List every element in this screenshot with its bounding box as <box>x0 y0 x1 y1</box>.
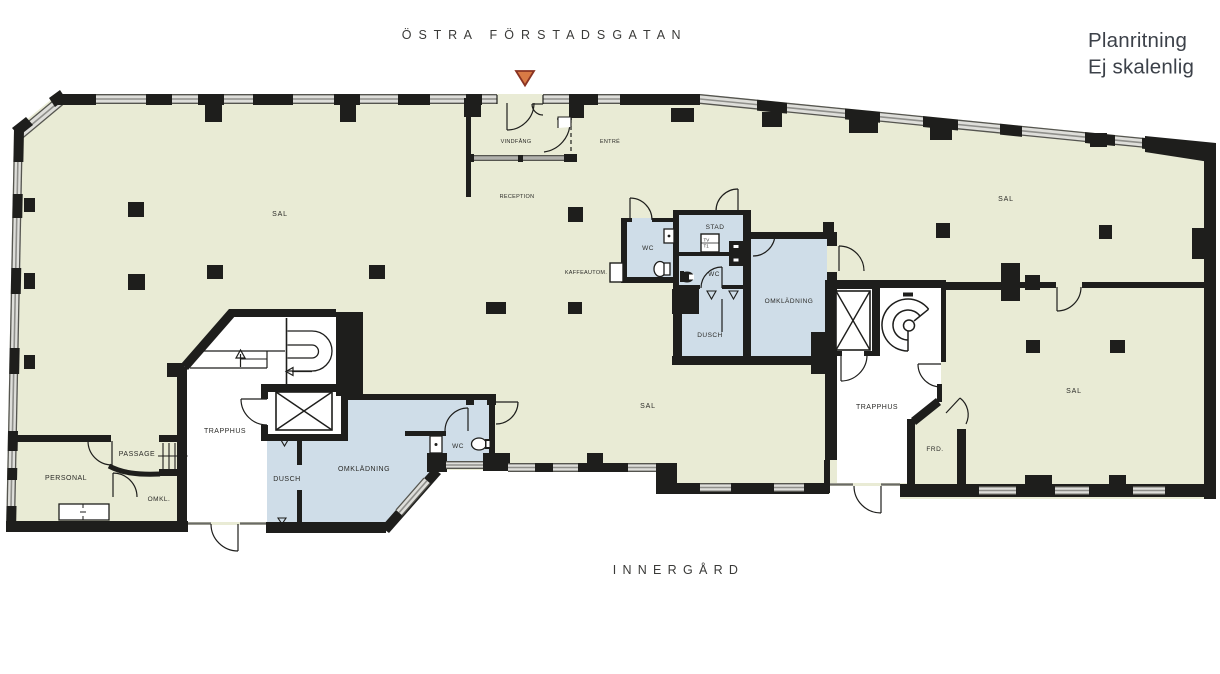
svg-text:SAL: SAL <box>1066 388 1082 395</box>
svg-text:OMKLÄDNING: OMKLÄDNING <box>338 465 390 473</box>
svg-text:RECEPTION: RECEPTION <box>500 194 535 200</box>
svg-text:SAL: SAL <box>998 196 1014 203</box>
svg-text:FRD.: FRD. <box>926 446 943 453</box>
svg-text:SAL: SAL <box>272 211 288 218</box>
svg-text:ENTRÉ: ENTRÉ <box>600 138 620 145</box>
svg-text:T1: T1 <box>704 244 710 249</box>
svg-text:VINDFÅNG: VINDFÅNG <box>501 138 532 145</box>
svg-text:PERSONAL: PERSONAL <box>45 475 87 482</box>
svg-text:TRAPPHUS: TRAPPHUS <box>204 428 246 435</box>
svg-text:OMKLÄDNING: OMKLÄDNING <box>765 297 814 305</box>
svg-text:WC: WC <box>452 443 464 450</box>
svg-text:Ö S T R A F Ö R S T A D S G: Ö S T R A F Ö R S T A D S G A T A N <box>402 28 683 42</box>
svg-text:DUSCH: DUSCH <box>697 332 723 339</box>
svg-text:WC: WC <box>642 245 654 252</box>
svg-text:WC: WC <box>708 271 720 278</box>
svg-text:Planritning: Planritning <box>1088 29 1187 52</box>
svg-text:PASSAGE: PASSAGE <box>119 451 155 458</box>
svg-text:KAFFEAUTOM.: KAFFEAUTOM. <box>565 270 607 276</box>
svg-text:DUSCH: DUSCH <box>273 476 300 483</box>
svg-text:OMKL.: OMKL. <box>148 496 171 503</box>
svg-text:TRAPPHUS: TRAPPHUS <box>856 404 898 411</box>
svg-text:STAD: STAD <box>706 224 725 231</box>
svg-text:Ej skalenlig: Ej skalenlig <box>1088 56 1194 79</box>
svg-text:TV: TV <box>704 238 710 243</box>
svg-text:SAL: SAL <box>640 403 656 410</box>
svg-text:I N N E R G Å R D: I N N E R G Å R D <box>613 562 740 577</box>
